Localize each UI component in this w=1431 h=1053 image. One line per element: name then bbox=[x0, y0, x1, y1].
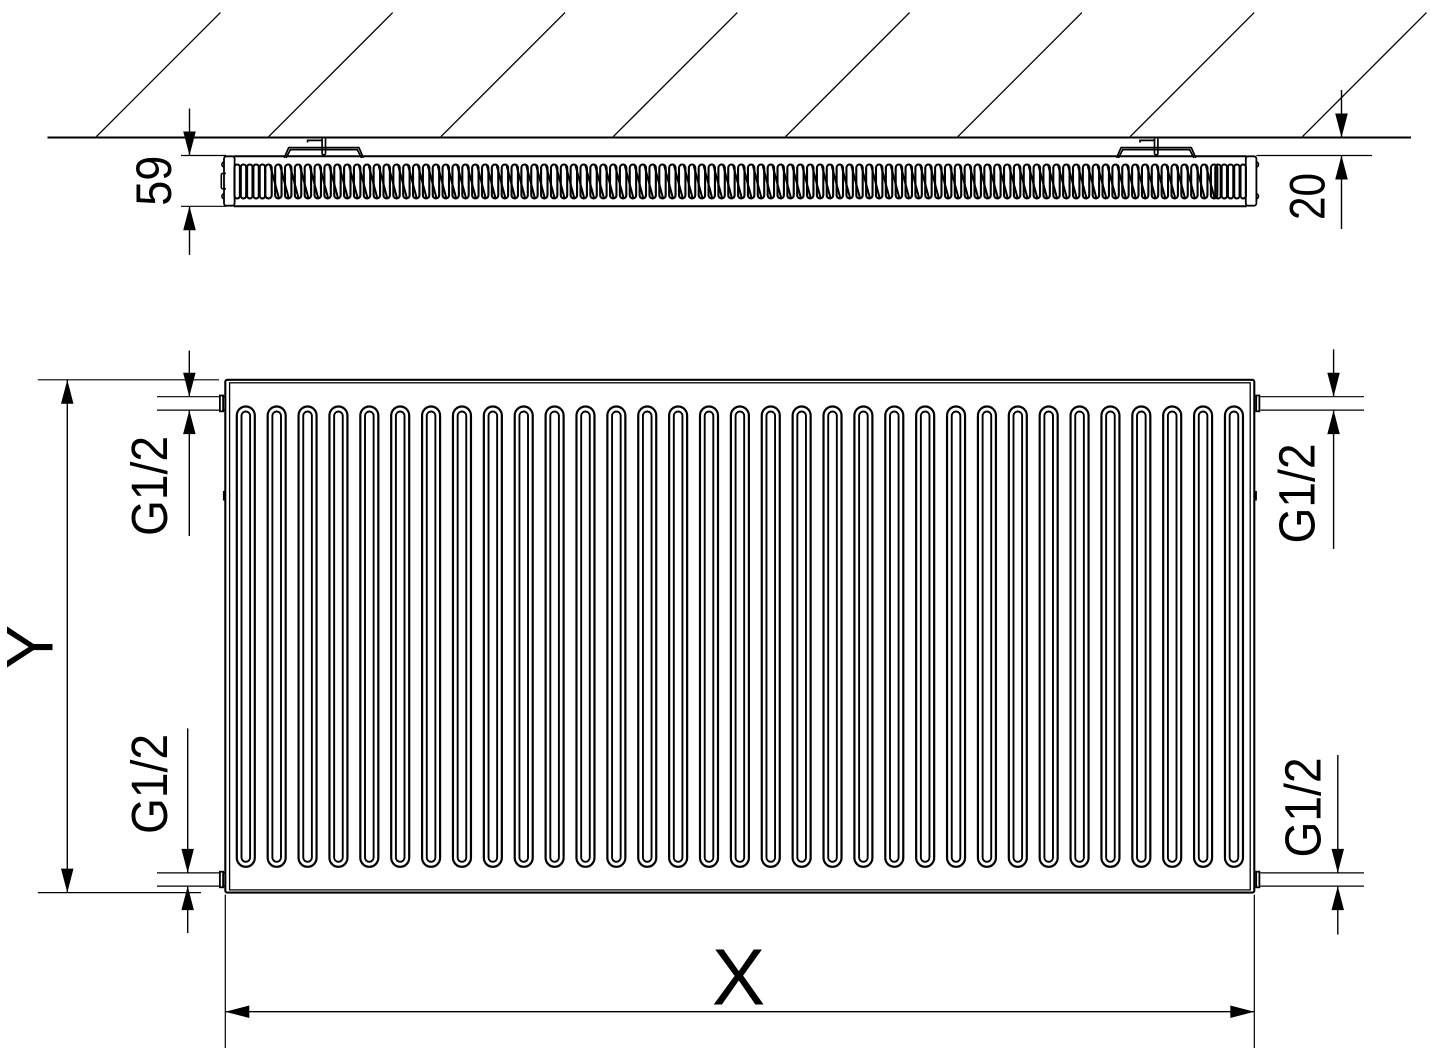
svg-text:Y: Y bbox=[0, 625, 67, 669]
svg-text:G1/2: G1/2 bbox=[121, 436, 178, 536]
svg-text:X: X bbox=[712, 933, 765, 1022]
svg-text:59: 59 bbox=[126, 156, 182, 206]
svg-text:G1/2: G1/2 bbox=[1275, 758, 1332, 858]
svg-text:G1/2: G1/2 bbox=[121, 734, 178, 834]
svg-text:G1/2: G1/2 bbox=[1269, 444, 1326, 544]
svg-text:20: 20 bbox=[1280, 173, 1336, 220]
